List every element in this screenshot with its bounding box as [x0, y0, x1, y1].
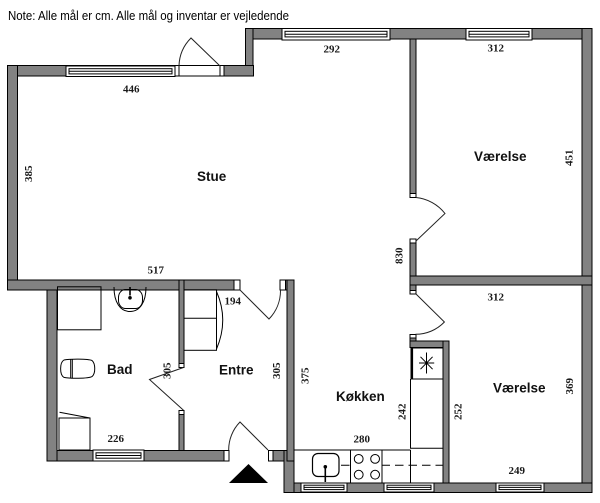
svg-text:385: 385 [23, 165, 35, 182]
svg-text:305: 305 [162, 362, 174, 379]
svg-text:312: 312 [488, 43, 505, 55]
svg-text:Værelse: Værelse [493, 381, 546, 396]
svg-text:305: 305 [271, 362, 283, 379]
svg-text:451: 451 [564, 150, 576, 167]
svg-text:252: 252 [453, 403, 465, 420]
svg-text:312: 312 [488, 292, 505, 304]
svg-text:830: 830 [394, 247, 406, 264]
svg-text:Bad: Bad [107, 362, 133, 377]
svg-text:Køkken: Køkken [336, 389, 385, 404]
svg-text:Note: Alle mål er cm. Alle mål: Note: Alle mål er cm. Alle mål og invent… [8, 8, 289, 23]
svg-text:369: 369 [564, 378, 576, 395]
svg-text:Entre: Entre [219, 363, 254, 378]
svg-text:280: 280 [354, 434, 371, 446]
svg-text:242: 242 [397, 403, 409, 420]
svg-text:226: 226 [108, 433, 125, 445]
svg-text:375: 375 [300, 367, 312, 384]
svg-text:194: 194 [225, 296, 242, 308]
svg-text:517: 517 [148, 265, 165, 277]
svg-text:249: 249 [509, 465, 526, 477]
svg-text:Værelse: Værelse [474, 149, 527, 164]
svg-text:292: 292 [324, 44, 341, 56]
svg-text:446: 446 [123, 84, 140, 96]
svg-text:Stue: Stue [197, 169, 227, 184]
